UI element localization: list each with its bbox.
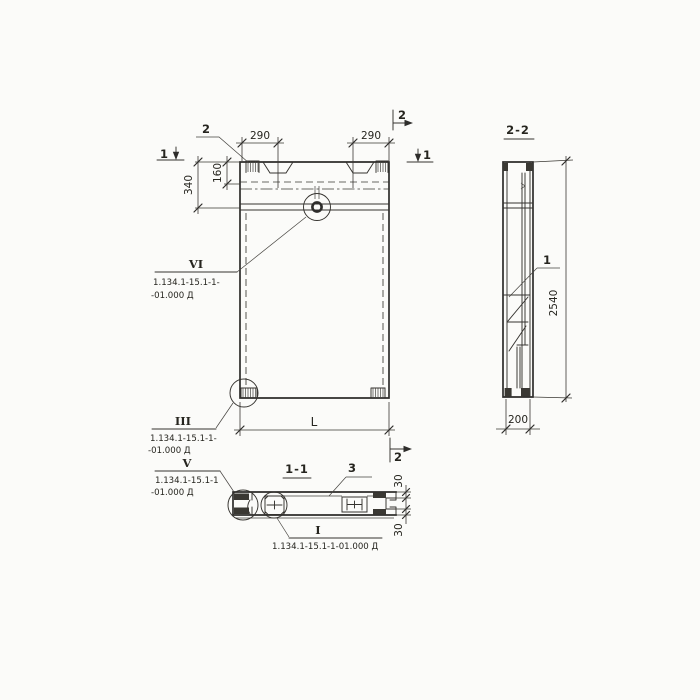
hidden-edges xyxy=(246,213,383,388)
drawing-sheet: 290 290 2 2 2 1 xyxy=(0,0,700,700)
dim-30-top: 30 30 xyxy=(390,474,411,536)
callout-3-text: 3 xyxy=(348,461,356,475)
right-end-flange-top xyxy=(373,493,386,499)
dim-30-top-text: 30 xyxy=(393,474,405,487)
section-2-2-outline xyxy=(503,162,533,397)
detail-label-vi: VI 1.134.1-15.1-1- -01.000 Д xyxy=(151,257,237,301)
top-right-rib-hatch xyxy=(378,162,386,173)
left-end-flange-bottom xyxy=(234,508,249,515)
cut-mark-1-left-text: 1 xyxy=(160,147,168,161)
dim-340-text: 340 xyxy=(183,175,195,195)
front-view: 290 290 2 2 2 1 xyxy=(148,108,433,464)
rib-cut-top-left xyxy=(504,163,508,171)
rib-cut-top-right xyxy=(526,163,532,171)
leader-iii xyxy=(216,403,233,428)
section-2-2-view: 2-2 1 2540 200 xyxy=(496,123,573,435)
dim-290-right-text: 290 xyxy=(361,130,381,142)
top-left-rib-hatch xyxy=(248,162,258,173)
dim-200-text: 200 xyxy=(508,414,528,426)
cut-mark-2-top-text: 2 xyxy=(398,108,406,122)
bottom-left-rib-hatch xyxy=(243,389,256,398)
dim-L-text: L xyxy=(311,415,318,429)
middle-socket xyxy=(342,497,367,512)
detail-circle-iii xyxy=(230,379,258,407)
detail-v-doc2: -01.000 Д xyxy=(151,488,194,498)
dim-160: 160 xyxy=(212,156,240,190)
section-2-2-walls xyxy=(507,162,530,397)
dim-160-text: 160 xyxy=(212,163,224,183)
callout-1-text: 1 xyxy=(543,253,551,267)
cut-mark-1-right-text: 1 xyxy=(423,148,431,162)
leader-vi xyxy=(237,217,306,272)
section-2-2-internals xyxy=(503,203,533,388)
cut-mark-2-top: 2 xyxy=(393,108,413,130)
detail-label-i: I 1.134.1-15.1-1-01.000 Д xyxy=(272,518,382,552)
rib-cut-bottom-left xyxy=(505,388,512,397)
panel-outline xyxy=(240,162,389,398)
right-end-groove xyxy=(386,492,396,515)
cut-mark-1-left: 1 xyxy=(157,147,184,161)
dim-290-left-text: 290 xyxy=(250,130,270,142)
detail-label-v: V 1.134.1-15.1-1 -01.000 Д xyxy=(151,456,234,498)
section-2-2-title: 2-2 xyxy=(506,123,530,137)
bottom-left-rib xyxy=(241,388,257,398)
dim-2540-text: 2540 xyxy=(548,290,560,317)
dim-200: 200 xyxy=(496,399,540,435)
anchor-stem xyxy=(315,186,319,199)
detail-v-label: V xyxy=(182,456,193,470)
detail-vi-label: VI xyxy=(188,257,203,271)
technical-drawing: 290 290 2 2 2 1 xyxy=(0,0,700,700)
dim-2540: 2540 xyxy=(533,156,573,402)
dim-L: L xyxy=(234,402,395,436)
detail-circle-vi xyxy=(304,194,331,221)
section-1-1-title: 1-1 xyxy=(285,462,309,476)
detail-iii-doc1: 1.134.1-15.1-1- xyxy=(150,434,217,444)
detail-label-iii: III 1.134.1-15.1-1- -01.000 Д xyxy=(148,414,217,456)
detail-i-label: I xyxy=(315,523,320,537)
cut-mark-1-right: 1 xyxy=(407,148,433,162)
callout-2-text: 2 xyxy=(202,122,210,136)
cut-mark-2-bottom-text: 2 xyxy=(394,450,402,464)
detail-iii-label: III xyxy=(175,414,191,428)
detail-i-doc: 1.134.1-15.1-1-01.000 Д xyxy=(272,542,379,552)
section-1-1-view: 1-1 3 30 30 V xyxy=(151,456,411,552)
rib-cut-bottom-right xyxy=(521,388,530,397)
dim-290-right: 290 xyxy=(347,130,395,188)
dim-290-left: 290 xyxy=(236,130,284,188)
callout-3: 3 xyxy=(329,461,372,496)
detail-vi-doc1: 1.134.1-15.1-1- xyxy=(153,278,220,288)
top-right-recess xyxy=(346,162,374,173)
rib-band-lines xyxy=(240,204,389,210)
left-end-flange-top xyxy=(234,494,249,501)
detail-vi-doc2: -01.000 Д xyxy=(151,291,194,301)
detail-v-doc1: 1.134.1-15.1-1 xyxy=(155,476,219,486)
embedded-plate xyxy=(265,496,284,515)
bottom-right-rib-hatch xyxy=(373,389,383,398)
right-end-flange-bottom xyxy=(373,509,386,515)
callout-2-top-left: 2 xyxy=(196,122,249,163)
cut-mark-2-bottom: 2 xyxy=(390,438,412,464)
detail-iii-doc2: -01.000 Д xyxy=(148,446,191,456)
dim-30-bottom-text: 30 xyxy=(393,523,405,536)
